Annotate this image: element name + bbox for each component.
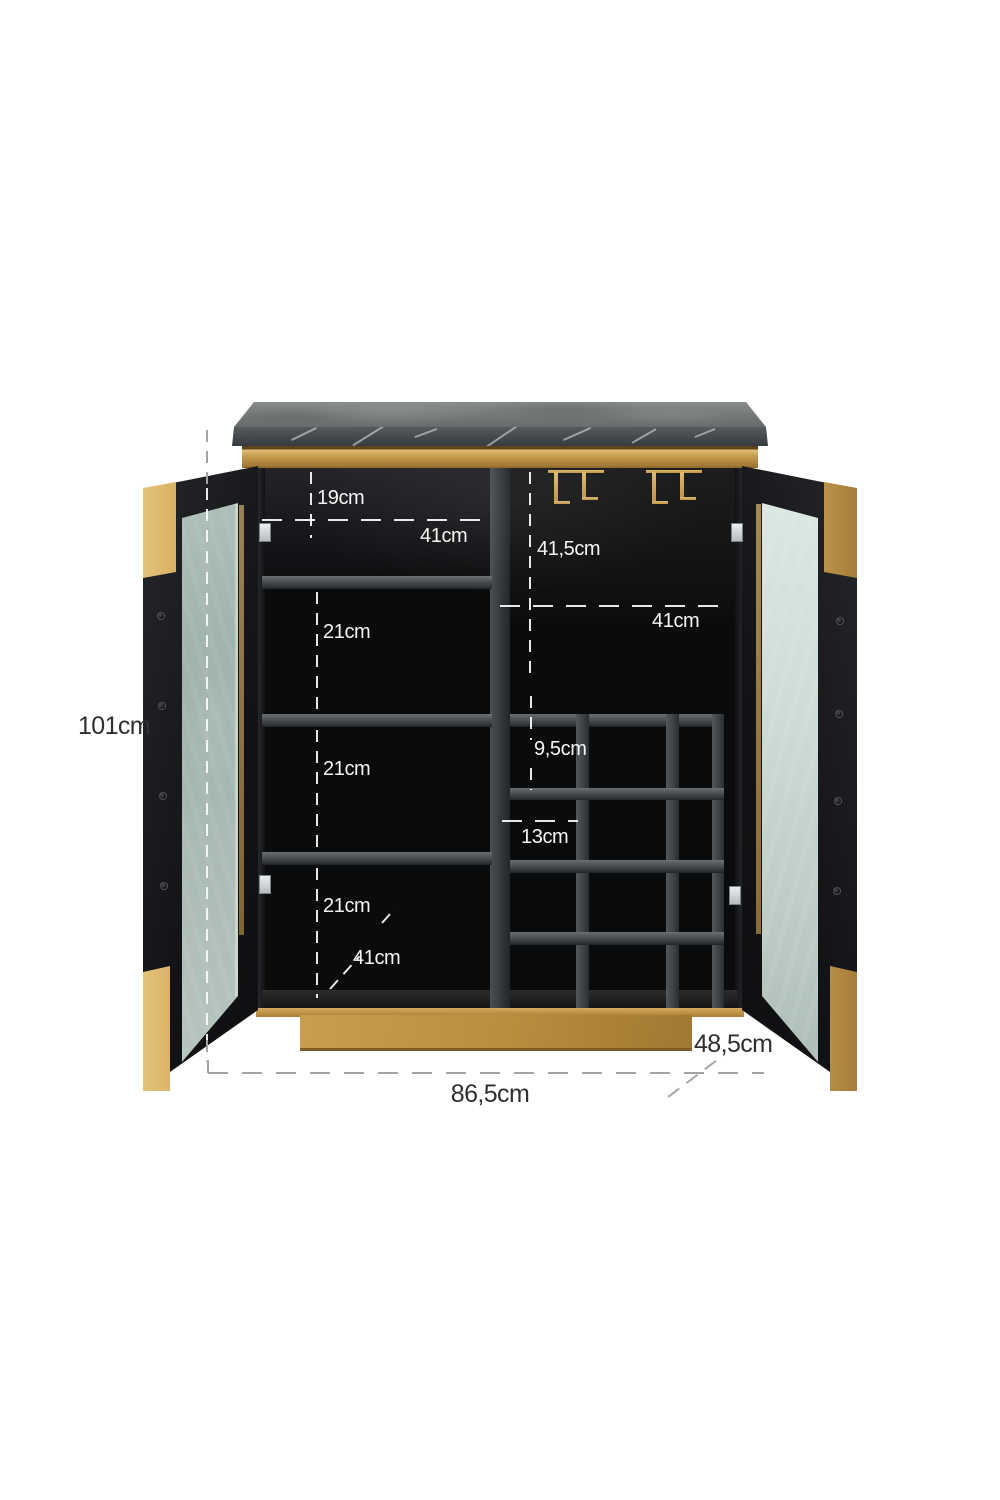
dim-top-clearance-label: 19cm bbox=[317, 487, 364, 510]
dim-height-label: 101cm bbox=[78, 712, 150, 741]
left-door bbox=[143, 462, 261, 1092]
dim-cubby-width-label: 13cm bbox=[521, 826, 568, 849]
dim-depth-label: 48,5cm bbox=[694, 1030, 772, 1059]
screw bbox=[159, 792, 167, 800]
marble-vein bbox=[563, 427, 591, 441]
marble-top-front-face bbox=[232, 427, 768, 447]
marble-vein bbox=[352, 426, 384, 447]
marble-vein bbox=[414, 428, 437, 438]
hinge-right-top bbox=[731, 523, 743, 542]
dim-shelf1-line bbox=[316, 592, 318, 712]
dim-height-line-top bbox=[206, 430, 208, 488]
hinge-right-bottom bbox=[729, 886, 741, 905]
right-door-inner-gold-sliver bbox=[756, 504, 761, 934]
gold-frame-band bbox=[242, 446, 758, 468]
dim-shelf3-line bbox=[316, 868, 318, 998]
screw bbox=[157, 612, 165, 620]
dim-width-line bbox=[208, 1072, 764, 1074]
dim-cubby-height-line-bottom bbox=[530, 768, 532, 790]
left-door-glass-edge-highlight bbox=[235, 504, 238, 996]
interior-light-glow bbox=[258, 468, 742, 1010]
marble-vein bbox=[291, 427, 317, 441]
dim-shelf1-label: 21cm bbox=[323, 621, 370, 644]
dim-left-width-label: 41cm bbox=[420, 525, 467, 548]
dim-top-clearance-line bbox=[310, 472, 312, 538]
dim-depth-line bbox=[667, 1054, 724, 1098]
hinge-left-top bbox=[259, 523, 271, 542]
dim-cubby-height-label: 9,5cm bbox=[534, 738, 586, 761]
dim-width-label: 86,5cm bbox=[430, 1080, 550, 1109]
plinth-base bbox=[300, 1015, 692, 1051]
dim-cubby-height-line-top bbox=[530, 696, 532, 740]
dim-right-height-label: 41,5cm bbox=[537, 538, 600, 561]
dim-shelf2-line bbox=[316, 730, 318, 850]
dim-shelf2-label: 21cm bbox=[323, 758, 370, 781]
marble-top-surface bbox=[232, 400, 768, 428]
screw bbox=[836, 617, 844, 625]
left-door-inner-gold-sliver bbox=[239, 505, 244, 935]
right-door bbox=[740, 462, 858, 1092]
dim-right-width-label: 41cm bbox=[652, 610, 699, 633]
dim-height-line-bottom bbox=[206, 1040, 208, 1062]
product-diagram: 101cm 86,5cm 48,5cm 19cm 41cm 41,5cm 41c… bbox=[0, 0, 1000, 1500]
screw bbox=[158, 702, 166, 710]
hinge-left-bottom bbox=[259, 875, 271, 894]
screw bbox=[833, 887, 841, 895]
dim-right-width-line bbox=[500, 605, 730, 607]
dim-right-height-line bbox=[529, 472, 531, 676]
screw bbox=[834, 797, 842, 805]
dim-shelf3-label: 21cm bbox=[323, 895, 370, 918]
cabinet-interior bbox=[258, 468, 742, 1010]
dim-height-line bbox=[206, 488, 208, 1040]
screw bbox=[835, 710, 843, 718]
dim-cubby-width-line bbox=[502, 820, 578, 822]
marble-vein bbox=[694, 428, 715, 438]
dim-left-width-line bbox=[262, 519, 490, 521]
screw bbox=[160, 882, 168, 890]
marble-vein bbox=[631, 428, 656, 444]
dim-interior-depth-label: 41cm bbox=[353, 947, 400, 970]
